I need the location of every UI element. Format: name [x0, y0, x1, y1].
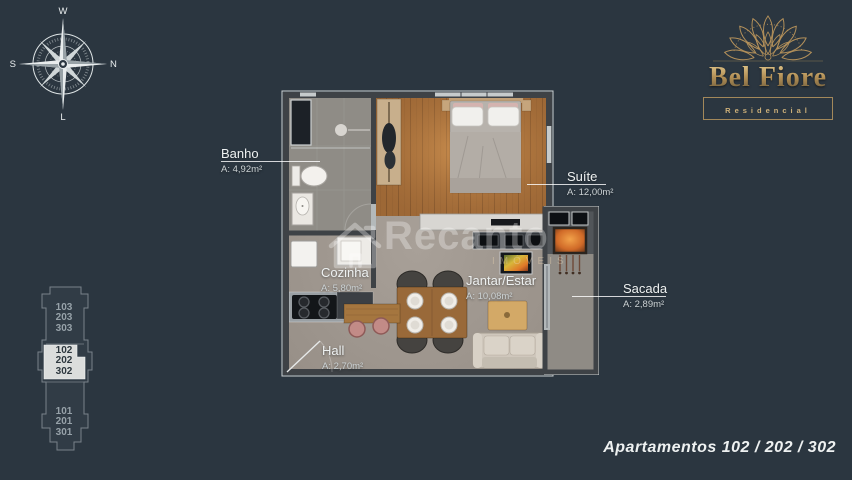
toilet [292, 166, 327, 186]
unit-number: 301 [26, 428, 102, 438]
fridge [291, 241, 317, 267]
room-area: A: 2,70m² [322, 361, 363, 372]
room-name: Cozinha [321, 265, 369, 280]
room-area: A: 5,80m² [321, 283, 369, 294]
room-area: A: 2,89m² [623, 299, 667, 310]
unit-number: 302 [26, 367, 102, 377]
room-area: A: 12,00m² [567, 187, 613, 198]
floorplan-poster: W N S L [0, 0, 852, 480]
room-area: A: 4,92m² [221, 164, 262, 175]
mandala-ornament-icon [693, 12, 843, 64]
label-jantar-estar: Jantar/Estar A: 10,08m² [466, 273, 536, 302]
unit-group-highlighted: 102 202 302 [26, 346, 102, 377]
tv-screen [500, 252, 532, 274]
room-name: Sacada [623, 281, 667, 296]
unit-number: 303 [26, 324, 102, 334]
floor-plan [278, 86, 608, 386]
compass-right-label: N [110, 59, 117, 70]
nightstand [522, 100, 531, 111]
stool [373, 318, 389, 334]
leader-line [527, 184, 606, 185]
bed [449, 98, 523, 193]
leader-line [221, 161, 320, 162]
unit-group-bottom: 101 201 301 [26, 407, 102, 438]
label-hall: Hall A: 2,70m² [322, 343, 363, 372]
shower-box [291, 100, 311, 145]
room-area: A: 10,08m² [466, 291, 536, 302]
compass-rose-icon: W N S L [6, 4, 122, 122]
room-name: Suíte [567, 169, 613, 184]
brand-logo: Bel Fiore Residencial [688, 12, 848, 120]
compass-left-label: S [10, 59, 16, 70]
room-name: Jantar/Estar [466, 273, 536, 288]
suite-tv [491, 219, 520, 226]
room-name: Hall [322, 343, 363, 358]
stool [349, 321, 365, 337]
compass-top-label: W [59, 6, 68, 17]
suite-dresser [420, 214, 546, 230]
balcony-window [572, 212, 588, 225]
kitchen-sink-unit [337, 237, 372, 265]
shower-head [335, 124, 348, 137]
apartments-caption: Apartamentos 102 / 202 / 302 [603, 439, 836, 457]
sofa [473, 333, 545, 368]
compass-bottom-label: L [60, 112, 65, 122]
bathroom-sink [292, 193, 313, 225]
brand-subtitle: Residencial [725, 106, 811, 115]
balcony-sliding-door [544, 264, 550, 330]
balcony-window [549, 212, 569, 225]
building-stack-diagram: 103 203 303 102 202 302 101 201 301 [24, 282, 108, 458]
unit-group-top: 103 203 303 [26, 303, 102, 334]
breakfast-bar [344, 304, 400, 323]
label-sacada: Sacada A: 2,89m² [572, 281, 667, 310]
nightstand [442, 100, 450, 111]
leader-line [572, 296, 666, 297]
bathroom-door-opening [371, 204, 376, 230]
brand-title: Bel Fiore [688, 62, 848, 94]
wardrobe [377, 99, 401, 185]
brand-subtitle-box: Residencial [703, 97, 833, 120]
barbecue-grill [554, 228, 586, 253]
label-cozinha: Cozinha A: 5,80m² [321, 265, 369, 294]
cooktop [292, 295, 337, 319]
tv-sideboard [473, 232, 546, 249]
room-name: Banho [221, 146, 262, 161]
label-suite: Suíte A: 12,00m² [527, 169, 613, 198]
label-banho: Banho A: 4,92m² [221, 146, 262, 175]
